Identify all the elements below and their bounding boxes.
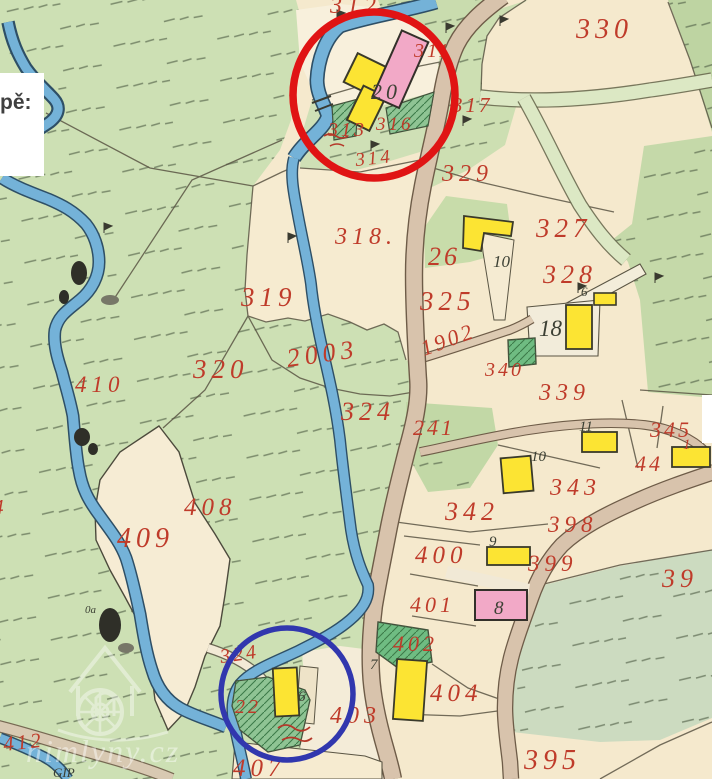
svg-text:401: 401 (410, 592, 455, 617)
svg-text:324: 324 (340, 397, 395, 426)
svg-text:402: 402 (393, 631, 438, 656)
svg-text:343: 343 (549, 475, 601, 501)
svg-text:342: 342 (444, 497, 499, 526)
svg-text:26: 26 (428, 242, 460, 271)
svg-text:6: 6 (581, 284, 588, 299)
svg-text:318.: 318. (334, 224, 397, 250)
svg-text:408: 408 (184, 494, 237, 521)
svg-text:20: 20 (371, 79, 401, 104)
svg-text:313: 313 (327, 119, 367, 141)
svg-text:18: 18 (539, 316, 563, 341)
svg-text:395: 395 (523, 745, 581, 776)
svg-text:398: 398 (547, 512, 598, 537)
svg-text:327: 327 (535, 213, 592, 243)
svg-text:22: 22 (235, 696, 261, 718)
svg-text:319: 319 (240, 282, 297, 312)
svg-text:8: 8 (494, 598, 504, 619)
svg-text:39: 39 (661, 564, 698, 593)
svg-text:409: 409 (117, 523, 174, 554)
svg-text:nimlyny.cz: nimlyny.cz (26, 733, 180, 769)
svg-text:11: 11 (579, 419, 593, 435)
svg-text:0a: 0a (85, 604, 97, 616)
svg-text:320: 320 (192, 354, 249, 384)
svg-text:4: 4 (0, 495, 9, 519)
svg-text:340: 340 (484, 359, 524, 381)
svg-text:316: 316 (375, 114, 414, 135)
svg-text:400: 400 (415, 542, 468, 569)
svg-text:10: 10 (531, 449, 547, 465)
svg-text:241: 241 (413, 415, 455, 440)
svg-text:329: 329 (441, 161, 493, 187)
svg-text:404: 404 (430, 680, 483, 707)
svg-text:330: 330 (575, 14, 633, 45)
svg-text:399: 399 (527, 551, 578, 576)
svg-text:403: 403 (330, 703, 381, 729)
svg-text:6: 6 (298, 689, 306, 705)
svg-text:314: 314 (353, 146, 393, 171)
svg-text:1: 1 (683, 437, 693, 453)
svg-text:328: 328 (542, 260, 597, 289)
svg-text:339: 339 (538, 380, 590, 406)
svg-text:44: 44 (635, 451, 663, 476)
svg-text:325: 325 (419, 286, 476, 316)
svg-text:410: 410 (75, 372, 125, 397)
svg-text:10: 10 (493, 252, 511, 271)
svg-text:9: 9 (489, 534, 497, 550)
